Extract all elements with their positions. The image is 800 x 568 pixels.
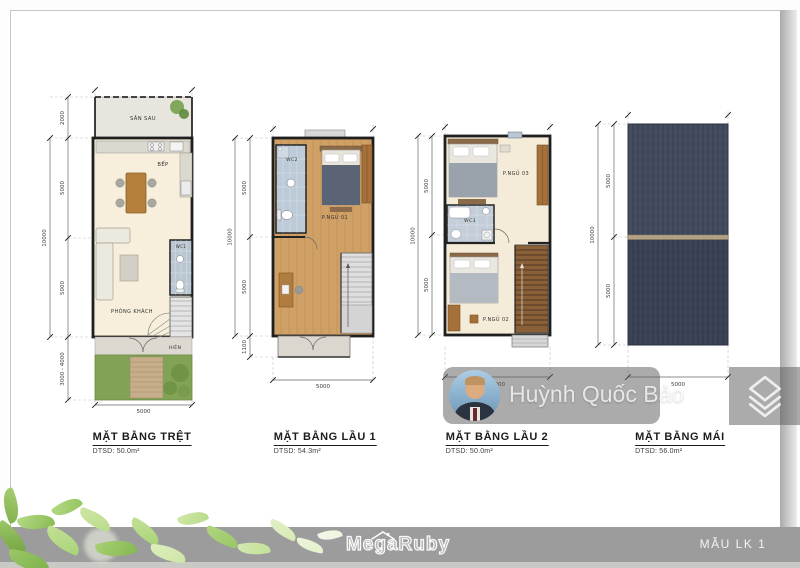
room-label-phong-khach: PHÒNG KHÁCH xyxy=(111,308,153,315)
plan-area: DTSD: 50.0m² xyxy=(446,448,549,455)
watermark: Huỳnh Quốc Bảo xyxy=(443,367,660,424)
dim-label: 10000 xyxy=(228,228,234,246)
plan-title: MẶT BẰNG LẦU 2 xyxy=(446,431,549,446)
dim-label: 5000 xyxy=(606,284,612,298)
dim-label: 5000 xyxy=(137,409,151,415)
room-label-san-sau: SÂN SAU xyxy=(130,115,156,122)
plan-title-block-mai: MẶT BẰNG MÁI DTSD: 56.0m² xyxy=(635,431,725,455)
room-label-ngu3: P.NGỦ 03 xyxy=(503,169,529,177)
brand-text: MegaRuby xyxy=(346,534,450,556)
megaruby-logo: MegaRuby xyxy=(346,527,450,562)
floor-plan-lau2: 5000 5000 10000 5000 P.NGỦ 03 WC3 xyxy=(410,105,585,405)
model-label: MẪU LK 1 xyxy=(700,527,767,562)
dim-label: 5000 xyxy=(60,181,66,195)
watermark-logo-box xyxy=(729,367,800,425)
dim-label: 1100 xyxy=(242,340,248,354)
room-label-bep: BẾP xyxy=(157,160,168,168)
dim-label: 5000 xyxy=(60,281,66,295)
dim-label: 5000 xyxy=(424,278,430,292)
plan-title-block-lau2: MẶT BẰNG LẦU 2 DTSD: 50.0m² xyxy=(446,431,549,455)
floor-plan-tret: 2000 5000 5000 3000 - 4000 10000 5000 SÂ… xyxy=(20,85,205,425)
room-label-wc2: WC2 xyxy=(286,157,298,163)
dim-label: 5000 xyxy=(316,384,330,390)
room-label-ngu2: P.NGỦ 02 xyxy=(483,315,509,323)
plan-title: MẶT BẰNG MÁI xyxy=(635,431,725,446)
dim-label: 10000 xyxy=(411,227,417,245)
dim-label: 3000 - 4000 xyxy=(60,352,66,386)
plan-area: DTSD: 50.0m² xyxy=(93,448,192,455)
dim-label: 5000 xyxy=(606,174,612,188)
dim-label: 5000 xyxy=(242,181,248,195)
footer-strip xyxy=(0,562,800,568)
room-label-wc1: WC1 xyxy=(176,244,187,249)
dim-label: 10000 xyxy=(590,226,596,244)
dim-label: 2000 xyxy=(60,111,66,125)
room-label-ngu1: P.NGỦ 01 xyxy=(322,213,348,221)
floor-plan-lau1: 5000 5000 1100 10000 5000 WC2 xyxy=(225,105,395,405)
plan-title: MẶT BẰNG TRỆT xyxy=(93,431,192,446)
plan-area: DTSD: 56.0m² xyxy=(635,448,725,455)
sheet-edge-shadow xyxy=(780,10,797,527)
plan-area: DTSD: 54.3m² xyxy=(274,448,377,455)
plan-title: MẶT BẰNG LẦU 1 xyxy=(274,431,377,446)
room-label-wc3: WC3 xyxy=(464,218,476,224)
watermark-name: Huỳnh Quốc Bảo xyxy=(509,381,684,408)
avatar xyxy=(449,370,500,421)
plan-title-block-tret: MẶT BẰNG TRỆT DTSD: 50.0m² xyxy=(93,431,192,455)
dim-label: 5000 xyxy=(424,179,430,193)
page: 2000 5000 5000 3000 - 4000 10000 5000 SÂ… xyxy=(0,0,800,568)
dim-label: 10000 xyxy=(42,229,48,247)
plan-title-block-lau1: MẶT BẰNG LẦU 1 DTSD: 54.3m² xyxy=(274,431,377,455)
dim-label: 5000 xyxy=(242,280,248,294)
gem-icon xyxy=(744,374,786,418)
roof-icon xyxy=(370,530,396,540)
floor-plan-mai: 5000 5000 10000 5000 xyxy=(575,105,755,405)
